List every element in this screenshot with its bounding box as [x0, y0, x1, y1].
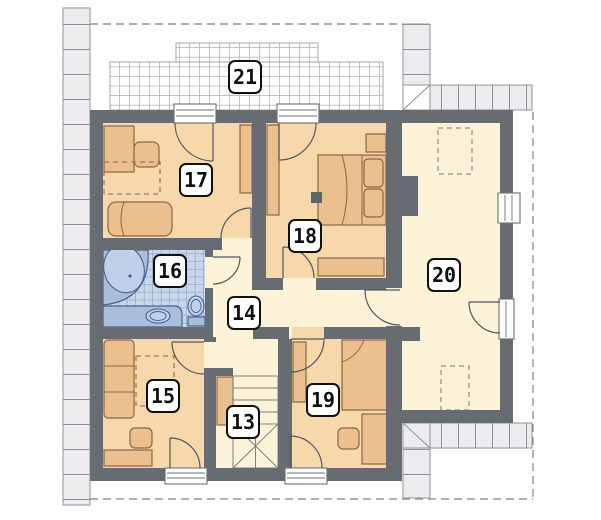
room-label-20: 20 [427, 258, 461, 292]
bed [108, 202, 172, 236]
room-label-15: 15 [146, 379, 180, 413]
window-20-right [498, 193, 520, 223]
room-label-13: 13 [226, 405, 260, 439]
chair [338, 428, 359, 449]
wardrobe [240, 125, 252, 193]
chair [130, 428, 152, 448]
floor-symbol [311, 192, 322, 203]
room-label-21: 21 [228, 60, 262, 94]
toilet-tank [188, 317, 205, 326]
sofa [104, 340, 134, 418]
chair [134, 142, 159, 167]
room-label-19: 19 [306, 383, 340, 417]
pillow [364, 189, 383, 217]
pillow [364, 159, 383, 187]
toilet-icon [188, 296, 204, 316]
desk [362, 414, 388, 464]
floor-plan-canvas: 13 14 15 16 17 18 19 20 21 [0, 0, 601, 520]
room-label-17: 17 [179, 163, 213, 197]
room-label-14: 14 [227, 296, 261, 330]
desk [104, 126, 134, 172]
desk [104, 450, 152, 466]
dresser [318, 258, 384, 276]
floor-plan-drawing [0, 0, 601, 520]
wardrobe [267, 125, 279, 215]
bathtub-drain [128, 274, 131, 277]
room-label-16: 16 [153, 254, 187, 288]
nightstand [366, 134, 386, 152]
bed [342, 340, 388, 410]
room-label-18: 18 [288, 219, 322, 253]
